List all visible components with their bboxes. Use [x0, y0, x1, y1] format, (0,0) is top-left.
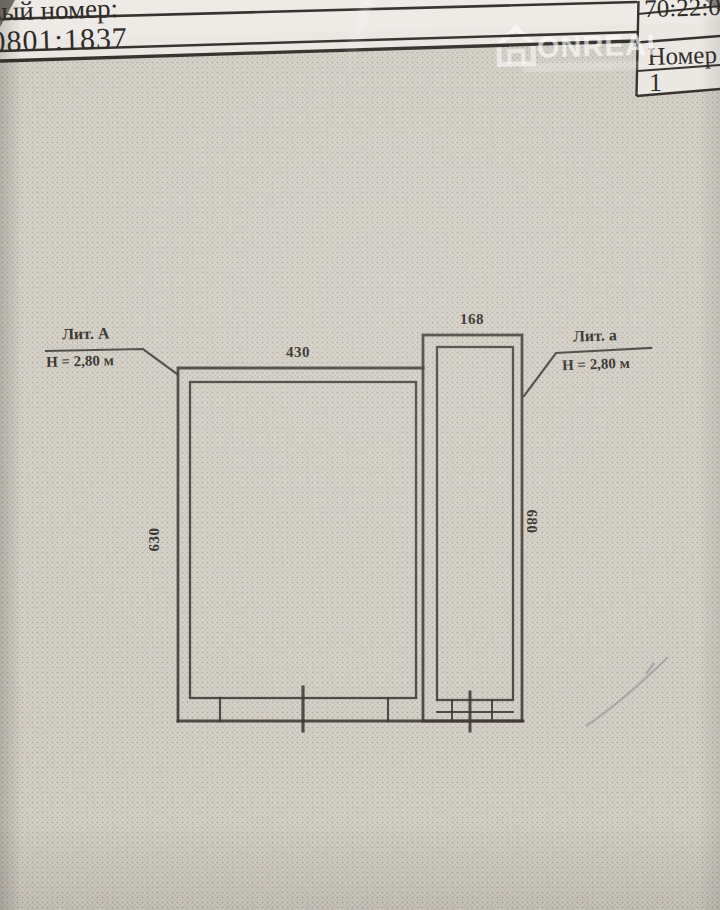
annex-outline — [423, 335, 522, 731]
page-number-box-value: 1 — [649, 68, 662, 98]
annex-width-dimension: 168 — [460, 311, 484, 328]
cadastral-district-number: 70:22:0 — [644, 0, 720, 23]
annex-litera-label: Лит. а — [573, 326, 617, 346]
document-linework — [0, 0, 720, 910]
floor-plan-drawing — [46, 335, 651, 731]
main-building-width-dimension: 430 — [286, 344, 310, 361]
main-building-litera-label: Лит. А — [62, 324, 110, 343]
main-building-depth-dimension: 630 — [146, 528, 163, 552]
main-building-outline — [178, 368, 523, 731]
pencil-mark — [586, 657, 668, 726]
annex-height-note: Н = 2,80 м — [562, 355, 630, 374]
watermark-text: ONREALT — [537, 28, 654, 64]
page-number-box-label: Номер э — [647, 40, 720, 71]
annex-depth-dimension: 680 — [523, 510, 540, 534]
leader-lines — [46, 348, 651, 396]
scanned-floor-plan-page: вый номер: 0801:1837 70:22:0 Номер э 1 O… — [0, 0, 720, 910]
main-building-height-note: Н = 2,80 м — [46, 352, 114, 371]
cadastral-number-value: 0801:1837 — [0, 21, 128, 59]
